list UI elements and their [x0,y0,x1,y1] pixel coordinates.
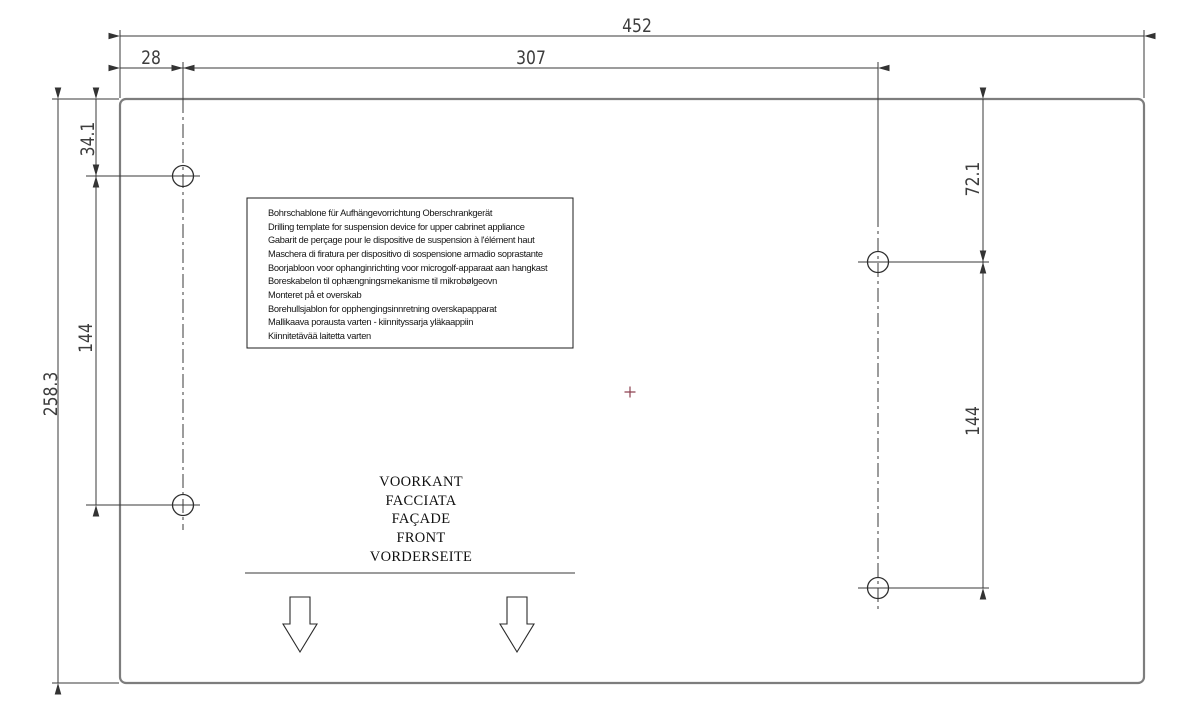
dimension-left-hole-inset: 28 [120,48,183,99]
instruction-line-en: Drilling template for suspension device … [268,222,525,232]
front-label-block: VOORKANT FACCIATA FAÇADE FRONT VORDERSEI… [245,474,575,573]
instruction-line-no: Borehullsjablon for opphengingsinnretnin… [268,304,497,314]
dim-label-left-hole-spacing: 144 [76,323,98,353]
center-mark-cross [625,387,636,398]
instruction-line-fi: Mallikaava porausta varten - kiinnityssa… [268,317,473,327]
dimension-overall-height: 258.3 [41,99,119,683]
dimension-hole-horizontal-span: 307 [183,48,878,99]
dimension-right-hole-spacing: 144 [963,262,985,588]
dimension-right-top-hole-offset: 72.1 [963,99,985,262]
dim-label-right-top-hole-offset: 72.1 [963,162,985,197]
instruction-line-nl: Boorjabloon voor ophanginrichting voor m… [268,263,548,273]
dim-label-overall-height: 258.3 [41,372,63,417]
front-label-dutch: VOORKANT [379,474,463,490]
dim-label-overall-width: 452 [622,16,652,38]
template-sheet-outline [120,99,1144,683]
instruction-line-fi2: Kiinnitetävää laitetta varten [268,331,371,341]
front-label-french: FAÇADE [392,511,451,527]
dimension-left-top-hole-offset: 34.1 [78,99,100,176]
dimension-left-hole-spacing: 144 [76,176,98,505]
drilling-template-drawing: 452 28 307 258.3 34.1 144 [0,0,1200,713]
front-label-german: VORDERSEITE [370,549,472,565]
drilling-template-page: 452 28 307 258.3 34.1 144 [0,0,1200,713]
down-arrow-left-icon [283,597,317,652]
instruction-line-fr: Gabarit de perçage pour le dispositive d… [268,235,535,245]
instruction-line-de: Bohrschablone für Aufhängevorrichtung Ob… [268,208,493,218]
dim-label-left-hole-inset: 28 [141,48,161,70]
instruction-box: Bohrschablone für Aufhängevorrichtung Ob… [247,198,573,348]
down-arrow-right-icon [500,597,534,652]
instruction-line-it: Maschera di firatura per dispositivo di … [268,249,543,259]
dimension-overall-width: 452 [120,16,1144,98]
instruction-line-da2: Monteret på et overskab [268,290,361,300]
left-hole-column [86,99,200,530]
front-label-italian: FACCIATA [385,493,456,509]
dim-label-hole-horizontal-span: 307 [516,48,546,70]
dim-label-left-top-hole-offset: 34.1 [78,122,100,157]
front-label-english: FRONT [396,530,445,546]
instruction-line-da: Boreskabelon til ophængningsmekanisme ti… [268,276,497,286]
dim-label-right-hole-spacing: 144 [963,406,985,436]
